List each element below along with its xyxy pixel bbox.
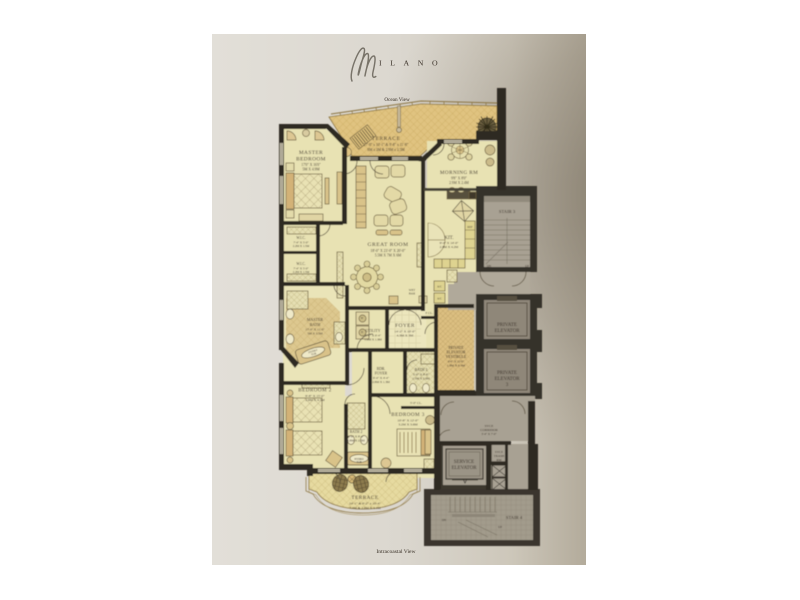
svg-text:VESTIBULE: VESTIBULE	[446, 355, 467, 359]
svg-text:5M X 4.9M: 5M X 4.9M	[302, 168, 320, 172]
svg-text:REF: REF	[467, 226, 473, 229]
svg-text:8M x 3M & 2.9M x 3.5M: 8M x 3M & 2.9M x 3.5M	[367, 148, 405, 152]
svg-text:PRIVATE: PRIVATE	[497, 371, 517, 376]
svg-text:MASTER: MASTER	[299, 150, 323, 156]
svg-text:MORNING RM: MORNING RM	[440, 170, 478, 176]
svg-text:1.9M X 6.4M: 1.9M X 6.4M	[447, 364, 465, 368]
svg-text:RM: RM	[497, 458, 502, 462]
svg-text:24'-1" & 9'-2" x 10'-4": 24'-1" & 9'-2" x 10'-4"	[349, 502, 381, 506]
svg-text:A/C: A/C	[437, 298, 442, 301]
svg-text:UTILITY: UTILITY	[366, 329, 381, 333]
svg-text:SERVICE: SERVICE	[454, 460, 474, 465]
svg-text:7.3M & 2.8M X 3.1M: 7.3M & 2.8M X 3.1M	[349, 506, 381, 510]
svg-text:ELEVATOR: ELEVATOR	[451, 466, 477, 471]
svg-text:STAIR 4: STAIR 4	[506, 515, 523, 520]
svg-text:2.8M X 1.3M: 2.8M X 1.3M	[372, 380, 390, 384]
svg-text:8' CL.: 8' CL.	[311, 382, 319, 386]
svg-text:BEDROOM: BEDROOM	[296, 157, 326, 163]
svg-text:FOYER: FOYER	[375, 372, 388, 376]
svg-text:BAR: BAR	[409, 292, 415, 296]
svg-text:9'8" X 8'0": 9'8" X 8'0"	[451, 177, 467, 181]
svg-text:BATH: BATH	[310, 322, 321, 327]
svg-text:A/C: A/C	[437, 286, 442, 289]
svg-text:1.5M X 2.6M: 1.5M X 2.6M	[412, 377, 430, 381]
svg-text:2.9M X 4.5M: 2.9M X 4.5M	[305, 398, 325, 402]
svg-text:UP: UP	[525, 264, 529, 268]
svg-text:Ocean View: Ocean View	[384, 97, 410, 103]
svg-text:UP: UP	[498, 525, 502, 529]
svg-text:ELEVATOR: ELEVATOR	[494, 329, 520, 334]
svg-text:5M X 3.3M: 5M X 3.3M	[307, 332, 322, 336]
svg-text:2.8M X 4.2M: 2.8M X 4.2M	[440, 245, 459, 249]
svg-text:TUB: TUB	[356, 461, 361, 464]
svg-text:BATH 3: BATH 3	[415, 368, 428, 372]
svg-text:GREAT ROOM: GREAT ROOM	[367, 242, 408, 248]
svg-text:1.8M X 2.5M: 1.8M X 2.5M	[347, 439, 365, 443]
svg-text:ELEVATOR: ELEVATOR	[446, 351, 466, 355]
svg-text:ILANO: ILANO	[379, 59, 446, 68]
svg-text:STAIR 3: STAIR 3	[499, 209, 516, 214]
svg-text:3.2M X 3.6M: 3.2M X 3.6M	[398, 423, 418, 427]
svg-text:3'-4" X 7'-0": 3'-4" X 7'-0"	[481, 432, 497, 436]
svg-text:3' CL.: 3' CL.	[425, 311, 433, 315]
svg-text:5'-0" CL.: 5'-0" CL.	[410, 401, 422, 405]
svg-text:2.2M X 1.5M: 2.2M X 1.5M	[293, 270, 310, 274]
svg-text:27'-0" x 10'-1" & 9'-8" x 11'-: 27'-0" x 10'-1" & 9'-8" x 11'-8"	[364, 143, 409, 147]
svg-text:TERRACE: TERRACE	[372, 136, 401, 142]
svg-text:1.6M X 1.9M: 1.6M X 1.9M	[364, 338, 382, 342]
svg-text:D: D	[361, 331, 363, 334]
svg-text:PRIVATE: PRIVATE	[448, 346, 464, 350]
svg-text:18'-0" X 23'-0" X 20'-0": 18'-0" X 23'-0" X 20'-0"	[371, 249, 406, 253]
svg-text:PRIVATE: PRIVATE	[497, 323, 517, 328]
svg-text:BDR.: BDR.	[377, 367, 386, 371]
svg-text:17'0" X 16'0": 17'0" X 16'0"	[301, 163, 321, 167]
svg-text:ELEVATOR: ELEVATOR	[494, 377, 520, 382]
svg-text:Intracoastal View: Intracoastal View	[376, 549, 416, 555]
svg-text:2.9M X 2.4M: 2.9M X 2.4M	[449, 181, 470, 185]
svg-text:BATH 2: BATH 2	[350, 430, 363, 434]
svg-text:4.3M X 3M: 4.3M X 3M	[397, 334, 415, 338]
svg-text:2.2M X 1.5M: 2.2M X 1.5M	[293, 244, 310, 248]
svg-text:BEDROOM 2: BEDROOM 2	[298, 388, 331, 394]
svg-text:BEDROOM 3: BEDROOM 3	[391, 412, 424, 418]
svg-text:W.I.C.: W.I.C.	[296, 262, 305, 266]
svg-text:TERRACE: TERRACE	[351, 495, 378, 501]
svg-text:W.I.C.: W.I.C.	[296, 236, 305, 240]
svg-text:FOYER: FOYER	[395, 323, 415, 329]
svg-text:5.5M X 7M X 6M: 5.5M X 7M X 6M	[375, 254, 402, 258]
